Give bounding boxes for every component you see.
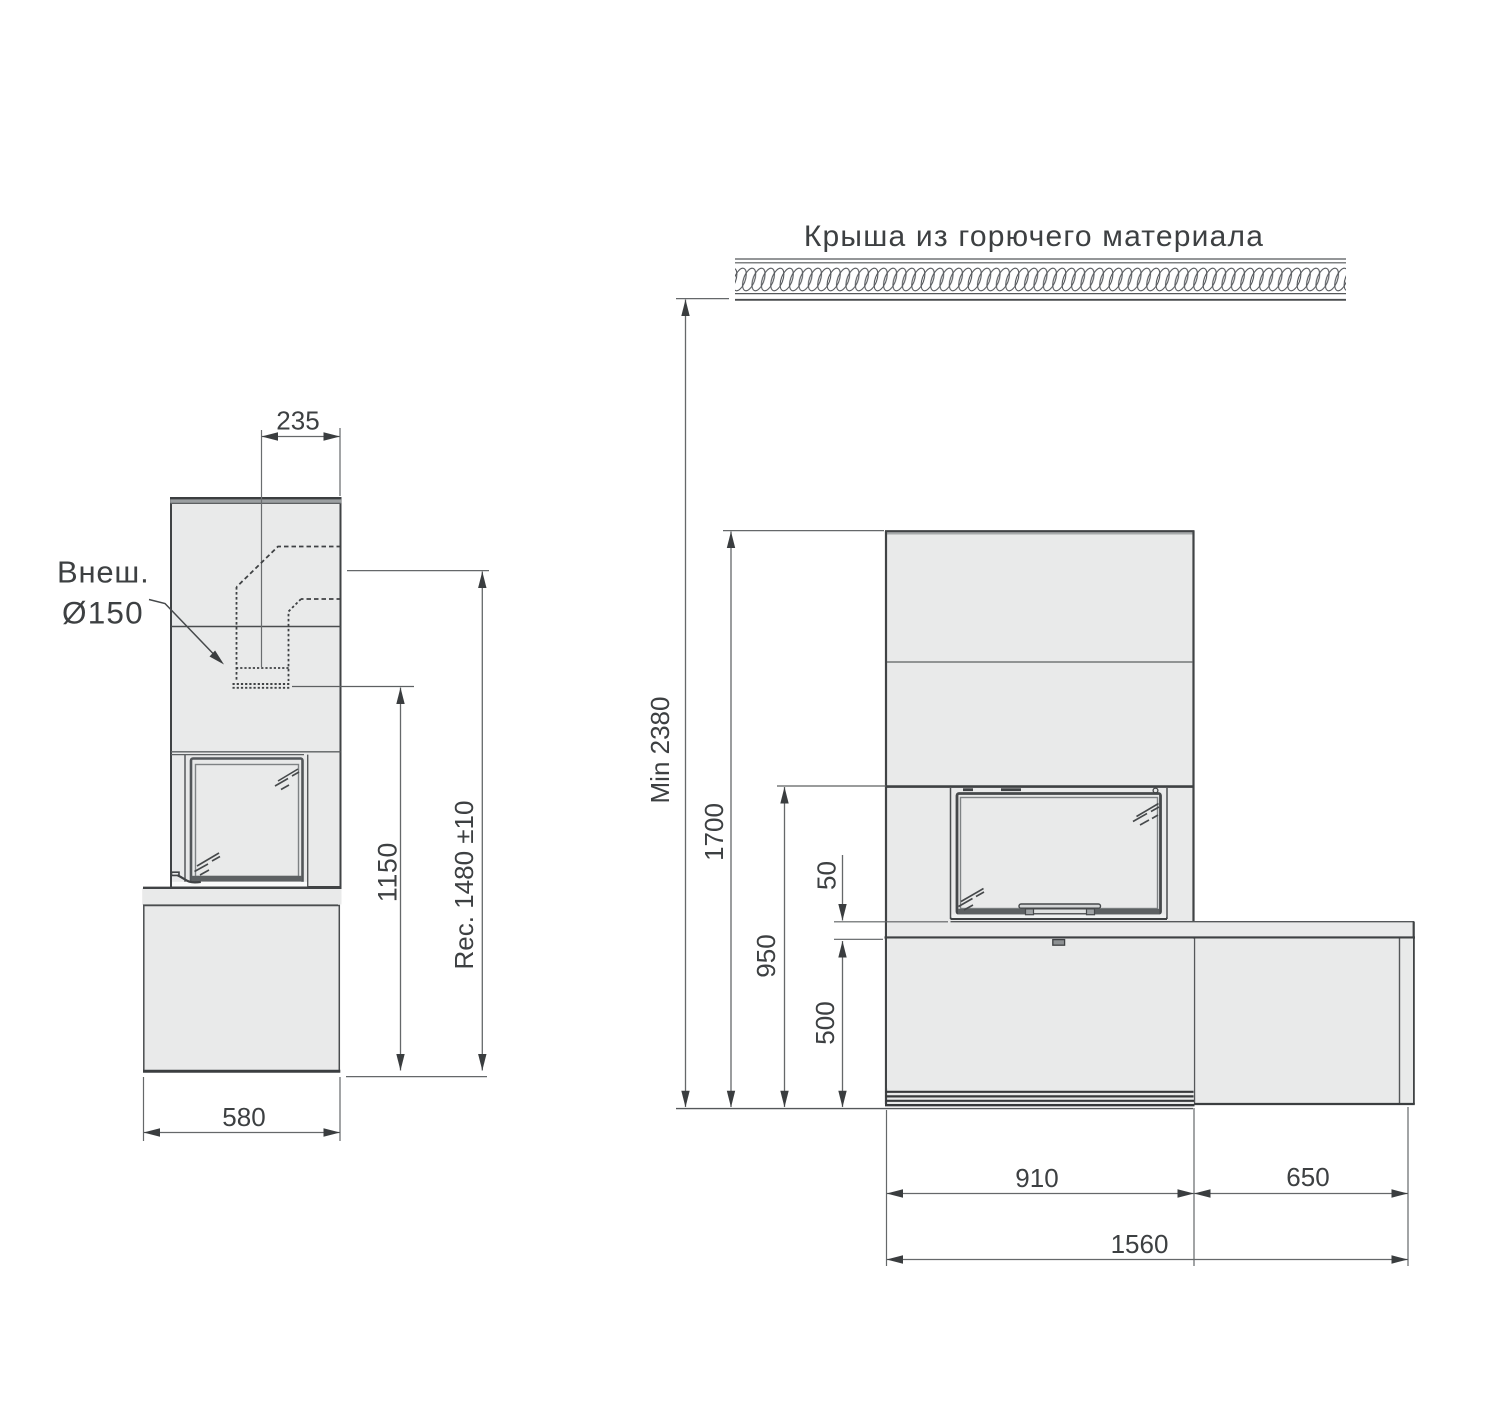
svg-text:1560: 1560 — [1111, 1229, 1169, 1259]
svg-text:235: 235 — [276, 406, 319, 436]
svg-text:Крыша из горючего материала: Крыша из горючего материала — [804, 220, 1264, 253]
svg-text:580: 580 — [222, 1102, 265, 1132]
svg-text:910: 910 — [1015, 1163, 1058, 1193]
svg-text:50: 50 — [812, 861, 842, 890]
svg-text:500: 500 — [810, 1001, 840, 1044]
svg-text:Ø150: Ø150 — [62, 595, 144, 631]
svg-text:Min 2380: Min 2380 — [645, 697, 675, 804]
svg-text:1700: 1700 — [699, 803, 729, 861]
svg-text:650: 650 — [1286, 1162, 1329, 1192]
svg-text:Внеш.: Внеш. — [57, 555, 150, 590]
svg-text:1150: 1150 — [373, 842, 403, 902]
svg-text:950: 950 — [751, 934, 781, 977]
svg-text:Rec. 1480 ±10: Rec. 1480 ±10 — [449, 801, 479, 970]
